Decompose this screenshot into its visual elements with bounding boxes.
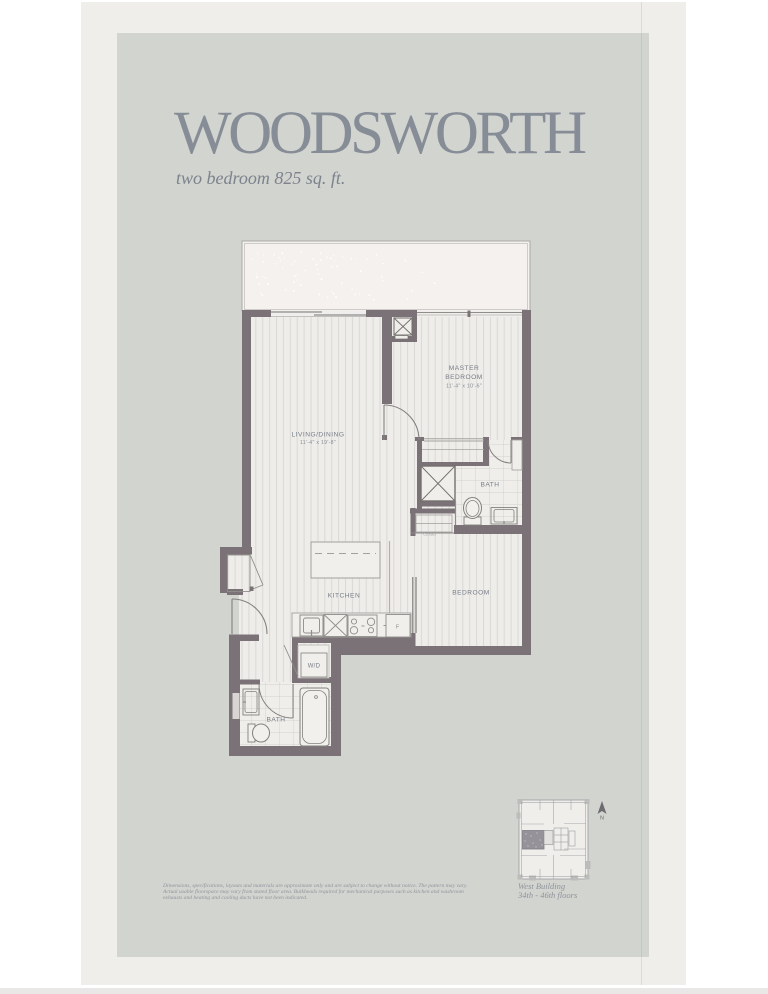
svg-text:11'-4" x 10'-6": 11'-4" x 10'-6" — [446, 384, 482, 390]
svg-text:BEDROOM: BEDROOM — [445, 374, 483, 381]
svg-text:N: N — [600, 816, 604, 822]
svg-text:CLOSET: CLOSET — [423, 533, 437, 537]
svg-text:BATH: BATH — [266, 717, 285, 724]
svg-text:BEDROOM: BEDROOM — [452, 590, 490, 597]
svg-text:LIVING/DINING: LIVING/DINING — [291, 432, 344, 439]
svg-text:MASTER: MASTER — [449, 365, 479, 372]
svg-text:W/D: W/D — [308, 664, 321, 670]
svg-text:KITCHEN: KITCHEN — [328, 593, 360, 600]
svg-text:11'-4" x 19'-8": 11'-4" x 19'-8" — [300, 440, 336, 446]
svg-text:BATH: BATH — [480, 482, 499, 489]
